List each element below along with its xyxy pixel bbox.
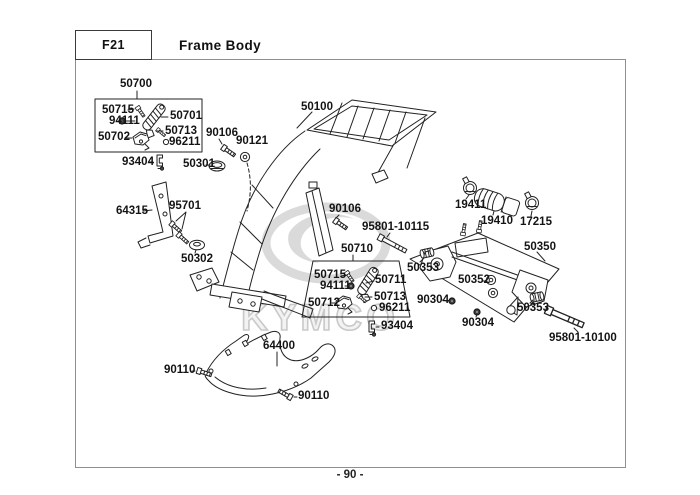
part-label-50301: 50301 (183, 159, 215, 171)
part-label-64315: 64315 (116, 206, 148, 218)
part-label-50353-a: 50353 (407, 263, 439, 275)
part-label-90304-b: 90304 (462, 318, 494, 330)
part-label-93404-a: 93404 (122, 157, 154, 169)
section-code: F21 (75, 30, 152, 60)
part-label-50352: 50352 (458, 275, 490, 287)
part-label-19410: 19410 (481, 216, 513, 228)
part-label-50711: 50711 (375, 275, 406, 287)
part-label-94111-a: 94111 (109, 116, 140, 128)
part-label-50700: 50700 (120, 79, 152, 91)
page-number: - 90 - (0, 469, 700, 481)
part-label-90121: 90121 (236, 136, 268, 148)
part-label-50710: 50710 (341, 244, 373, 256)
page-title: Frame Body (179, 38, 261, 53)
part-label-96211-b: 96211 (379, 303, 410, 315)
part-label-50350: 50350 (524, 242, 556, 254)
part-label-90110-a: 90110 (164, 365, 195, 377)
part-label-95801-10115: 95801-10115 (362, 222, 429, 234)
part-label-95801-10100: 95801-10100 (549, 333, 617, 345)
part-label-50353-b: 50353 (517, 303, 549, 315)
part-label-96211-a: 96211 (169, 137, 200, 149)
part-label-50100: 50100 (301, 102, 333, 114)
part-label-50302: 50302 (181, 254, 213, 266)
part-label-19411: 19411 (455, 200, 486, 212)
page-border (75, 59, 626, 468)
part-label-90106-b: 90106 (329, 204, 361, 216)
part-label-50701: 50701 (170, 111, 202, 123)
part-label-93404-b: 93404 (381, 321, 413, 333)
part-label-95701: 95701 (169, 201, 201, 213)
part-label-50712: 50712 (308, 298, 340, 310)
part-label-94111-b: 94111 (320, 281, 351, 293)
part-label-50702: 50702 (98, 132, 130, 144)
part-label-64400: 64400 (263, 341, 295, 353)
part-label-90304-a: 90304 (417, 295, 449, 307)
part-label-17215: 17215 (520, 217, 552, 229)
part-label-90106-a: 90106 (206, 128, 238, 140)
part-label-90110-b: 90110 (298, 391, 329, 403)
